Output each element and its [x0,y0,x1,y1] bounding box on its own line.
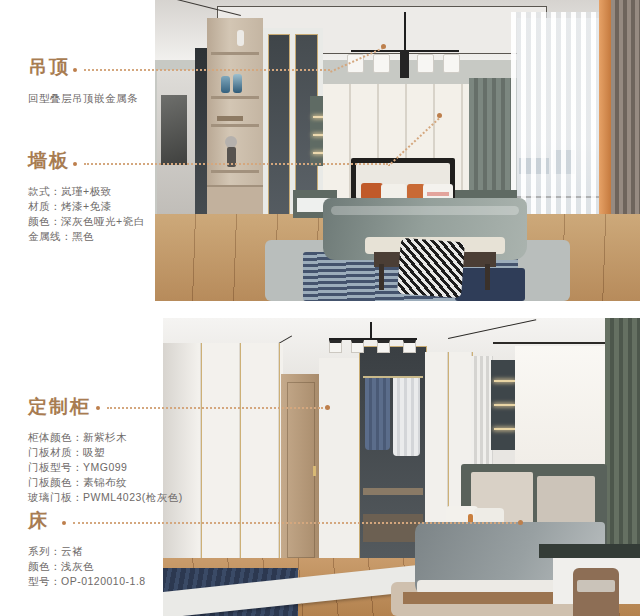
cabinet-specs: 柜体颜色：新紫杉木 门板材质：吸塑 门板型号：YMG099 门板颜色：素锦布纹 … [28,430,183,505]
spec-bed-model: 型号：OP-0120010-1.8 [28,574,146,589]
section-title-bed: 床 [28,508,146,534]
section-custom-cabinet: 定制柜 柜体颜色：新紫杉木 门板材质：吸塑 门板型号：YMG099 门板颜色：素… [28,394,183,505]
leader-dot [73,68,77,72]
section-title-ceiling: 吊顶 [28,54,138,80]
lamp-shade [417,54,434,73]
niche-shelf [494,428,515,430]
bench-leg [379,264,384,290]
callout-dot-cabinet [325,405,330,410]
lamp-shade [351,340,364,353]
navy-rug-block [455,268,525,301]
spec-door-material: 门板材质：吸塑 [28,445,183,460]
callout-dot-bed [518,520,523,525]
section-bed: 床 系列：云褚 颜色：浅灰色 型号：OP-0120010-1.8 [28,508,146,589]
chair-cushion [577,580,615,592]
lamp-shade [329,340,342,353]
houndstooth-throw [397,238,465,298]
bench-desk-top [539,544,640,558]
leader-dot [62,521,66,525]
chandelier-body [400,50,409,78]
spec-bed-color: 颜色：浅灰色 [28,559,146,574]
section-title-wall-panel: 墙板 [28,148,145,174]
callout-dot-wall [437,113,442,118]
leader-line-cabinet [107,407,323,409]
hanging-clothes-navy [365,378,390,450]
blue-vase [233,74,242,93]
lamp-shade [377,340,390,353]
leader-line-bed [73,522,516,524]
chair [573,568,619,616]
spec-cabinet-color: 柜体颜色：新紫杉木 [28,430,183,445]
spec-door-color: 门板颜色：素锦布纹 [28,475,183,490]
lamp-shade [373,54,390,73]
closet-shelf [363,488,423,495]
lamp-shade [443,54,460,73]
niche-shelf [494,380,515,382]
pink-stripe [427,192,449,196]
cabinet-shelf [211,96,259,99]
niche-shelf [494,404,515,406]
spec-material: 材质：烤漆+免漆 [28,199,145,214]
cabinet-shelf [211,124,259,127]
chandelier [370,322,372,338]
duvet-fold [331,206,519,215]
hanging-clothes-white [393,378,420,456]
blue-vase [221,76,230,93]
spec-glass-door: 玻璃门板：PWML4023(枪灰色) [28,490,183,505]
bedroom-render-top [155,0,640,301]
bench-leg [485,264,490,290]
section-ceiling: 吊顶 回型叠层吊顶嵌金属条 [28,54,138,106]
spec-series: 系列：云褚 [28,544,146,559]
white-vase [237,30,244,46]
bed-specs: 系列：云褚 颜色：浅灰色 型号：OP-0120010-1.8 [28,544,146,589]
lamp-shade [403,340,416,353]
leader-dot [96,406,100,410]
leader-line-ceiling [84,69,330,71]
bedroom-render-bottom [163,318,640,616]
spec-style: 款式：岚瑾+极致 [28,184,145,199]
spec-metal-line: 金属线：黑色 [28,229,145,244]
cabinet-shelf [211,52,259,55]
door-handle [313,466,316,476]
interior-design-spec-board: 吊顶 回型叠层吊顶嵌金属条 墙板 款式：岚瑾+极致 材质：烤漆+免漆 颜色：深灰… [0,0,640,616]
wall-art [161,95,187,165]
leader-dot [73,162,77,166]
slat-wall [605,318,640,553]
closet-drawer [363,514,423,542]
wardrobe-panel [319,358,361,573]
leader-line-wall-panel [84,163,388,165]
spec-color: 颜色：深灰色哑光+瓷白 [28,214,145,229]
chandelier [404,12,406,52]
cabinet-shelf [211,170,259,173]
ceiling-description: 回型叠层吊顶嵌金属条 [28,92,138,106]
wall-panel-specs: 款式：岚瑾+极致 材质：烤漆+免漆 颜色：深灰色哑光+瓷白 金属线：黑色 [28,184,145,244]
spec-door-model: 门板型号：YMG099 [28,460,183,475]
callout-dot-ceiling [381,44,386,49]
books [217,116,243,121]
